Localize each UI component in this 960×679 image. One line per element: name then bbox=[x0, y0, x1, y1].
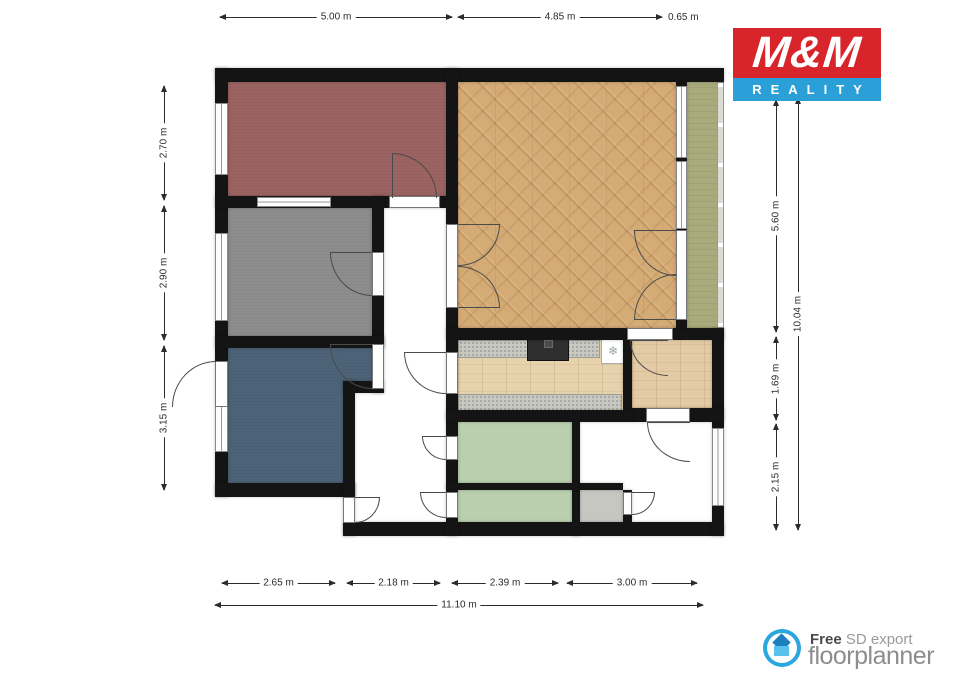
dim-top-2: 4.85 m bbox=[458, 11, 662, 23]
balcony-railing bbox=[717, 82, 724, 328]
door-swing-blue-exterior bbox=[172, 361, 216, 407]
door-swing-white-room bbox=[647, 422, 690, 462]
window-red-left bbox=[215, 103, 228, 175]
dim-top-3: 0.65 m bbox=[668, 12, 699, 23]
door-swing-bathroom bbox=[422, 436, 446, 460]
dim-right-1: 5.60 m bbox=[770, 100, 782, 332]
dim-bottom-2: 2.18 m bbox=[347, 577, 440, 589]
window-whiteroom-right bbox=[712, 428, 724, 506]
room-bedroom-blue-lower bbox=[228, 348, 343, 483]
door-swing-kitchen bbox=[404, 352, 446, 394]
wall-bottom bbox=[343, 522, 724, 536]
door-white-room bbox=[646, 408, 690, 422]
window-blue-left bbox=[215, 405, 228, 452]
door-bathroom bbox=[446, 436, 458, 460]
dim-right-total: 10.04 m bbox=[792, 98, 804, 530]
door-swing-storage bbox=[632, 492, 655, 515]
dim-left-2: 2.90 m bbox=[158, 206, 170, 340]
door-wc bbox=[446, 492, 458, 518]
wall-bottom-left bbox=[215, 483, 355, 497]
room-balcony bbox=[687, 82, 717, 328]
house-icon bbox=[767, 633, 797, 663]
wall-storage-top bbox=[580, 483, 623, 490]
door-swing-wc bbox=[420, 492, 446, 518]
door-blue-room bbox=[372, 344, 384, 389]
room-wc bbox=[458, 490, 572, 522]
door-side-room bbox=[627, 328, 673, 340]
door-swing-entry bbox=[355, 497, 380, 523]
dim-right-3: 2.15 m bbox=[770, 424, 782, 530]
door-gray-room bbox=[372, 252, 384, 296]
window-gray-left bbox=[215, 233, 228, 321]
floorplan-export: ❄ bbox=[0, 0, 960, 679]
wall-green-divider bbox=[446, 483, 580, 490]
mm-logo-subtitle: REALITY bbox=[743, 82, 871, 97]
dim-bottom-3: 2.39 m bbox=[452, 577, 558, 589]
wall-green-right bbox=[572, 422, 580, 536]
dim-left-1: 2.70 m bbox=[158, 86, 170, 200]
window-balcony-mid bbox=[676, 161, 687, 229]
door-storage bbox=[623, 492, 632, 515]
wall-kitchen-bottom bbox=[446, 410, 632, 422]
dim-left-3: 3.15 m bbox=[158, 346, 170, 490]
dim-top-1: 5.00 m bbox=[220, 11, 452, 23]
wall-living-bottom bbox=[446, 328, 724, 340]
dim-bottom-total: 11.10 m bbox=[215, 599, 703, 611]
dim-bottom-4: 3.00 m bbox=[567, 577, 697, 589]
mm-logo-title: M&M bbox=[750, 28, 863, 78]
wall-blue-step-v bbox=[343, 381, 355, 497]
cooktop bbox=[527, 337, 569, 361]
room-bathroom bbox=[458, 422, 572, 483]
door-kitchen bbox=[446, 352, 458, 394]
wall-kitchen-side bbox=[623, 340, 632, 410]
door-entry bbox=[343, 497, 355, 523]
wall-top bbox=[215, 68, 724, 82]
dim-bottom-1: 2.65 m bbox=[222, 577, 335, 589]
window-interior bbox=[257, 197, 331, 207]
door-blue-exterior bbox=[215, 361, 228, 407]
window-balcony-upper bbox=[676, 86, 687, 158]
door-living-double bbox=[446, 224, 458, 308]
floorplanner-wordmark: floorplanner bbox=[808, 642, 934, 671]
burner-icon bbox=[544, 340, 553, 348]
mm-reality-banner: REALITY bbox=[733, 78, 881, 101]
fridge: ❄ bbox=[601, 339, 625, 364]
floorplanner-icon bbox=[763, 629, 801, 667]
snowflake-icon: ❄ bbox=[608, 344, 618, 358]
room-storage bbox=[580, 490, 623, 522]
dim-right-2: 1.69 m bbox=[770, 337, 782, 420]
mm-reality-logo: M&M bbox=[733, 28, 881, 78]
door-balcony-opening bbox=[676, 230, 687, 320]
